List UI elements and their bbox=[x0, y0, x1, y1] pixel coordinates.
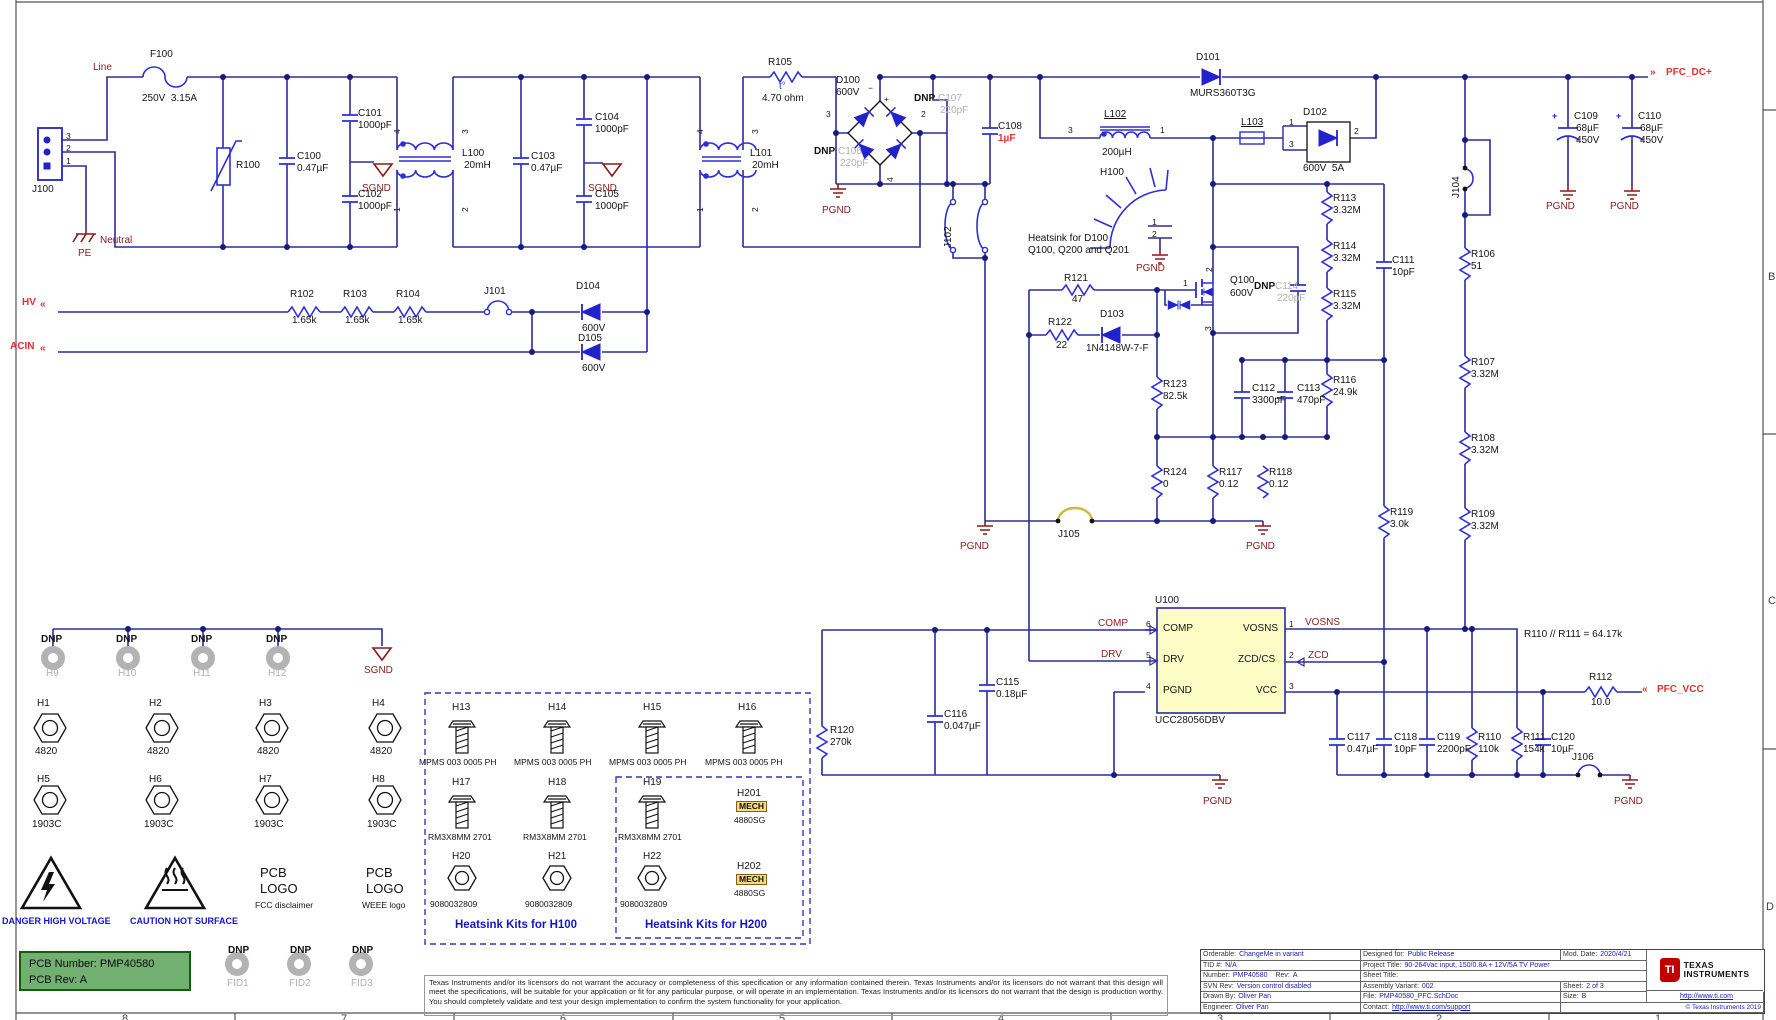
schematic-label: 68µF bbox=[1576, 124, 1599, 134]
schematic-label: 3 bbox=[1068, 126, 1073, 135]
schematic-label: D100 bbox=[836, 76, 860, 86]
schematic-label: PCB bbox=[260, 866, 287, 879]
schematic-label: H21 bbox=[548, 852, 566, 862]
schematic-label: DRV bbox=[1101, 650, 1122, 660]
schematic-label: J105 bbox=[1058, 530, 1080, 540]
schematic-label: « bbox=[40, 344, 46, 354]
schematic-label: C110 bbox=[1638, 112, 1661, 122]
schematic-label: 82.5k bbox=[1163, 392, 1187, 402]
schematic-label: H8 bbox=[372, 775, 385, 785]
schematic-label: DNP bbox=[914, 94, 935, 104]
schematic-label: L103 bbox=[1241, 118, 1263, 128]
jumper-J106 bbox=[1576, 765, 1603, 777]
pcb-rev: PCB Rev: A bbox=[29, 972, 181, 988]
schematic-label: MPMS 003 0005 PH bbox=[514, 758, 591, 767]
schematic-label: U100 bbox=[1155, 596, 1179, 606]
schematic-label: H3 bbox=[259, 699, 272, 709]
schematic-label: J104 bbox=[1452, 176, 1462, 198]
schematic-label: 4 bbox=[696, 129, 705, 134]
schematic-label: 0 bbox=[1163, 480, 1169, 490]
ti-bug-icon: TI bbox=[1660, 958, 1680, 982]
schematic-label: H19 bbox=[643, 778, 661, 788]
schematic-label: 0.12 bbox=[1269, 480, 1288, 490]
schematic-label: R117 bbox=[1219, 468, 1242, 478]
schematic-label: 1 bbox=[1655, 1014, 1661, 1020]
jumper-J101 bbox=[484, 301, 511, 315]
schematic-label: R118 bbox=[1269, 468, 1292, 478]
schematic-label: + bbox=[884, 95, 889, 104]
schematic-label: » bbox=[1650, 68, 1656, 78]
schematic-label: LOGO bbox=[260, 882, 298, 895]
schematic-label: H201 bbox=[737, 789, 761, 799]
schematic-label: 3 bbox=[751, 129, 760, 134]
schematic-label: C102 bbox=[358, 190, 382, 200]
schematic-label: 154k bbox=[1523, 745, 1545, 755]
schematic-label: 10pF bbox=[1392, 268, 1415, 278]
schematic-label: DNP bbox=[352, 946, 373, 956]
schematic-label: 600V bbox=[836, 88, 859, 98]
schematic-label: R106 bbox=[1471, 250, 1495, 260]
schematic-label: FID2 bbox=[289, 979, 311, 989]
schematic-label: H7 bbox=[259, 775, 272, 785]
schematic-label: 0.12 bbox=[1219, 480, 1238, 490]
schematic-label: B bbox=[1768, 272, 1775, 283]
schematic-label: 8 bbox=[122, 1014, 128, 1020]
schematic-label: R109 bbox=[1471, 510, 1495, 520]
diode-D104 bbox=[582, 304, 600, 320]
schematic-label: − bbox=[868, 84, 873, 93]
schematic-label: 3.32M bbox=[1333, 206, 1361, 216]
schematic-label: 9080032809 bbox=[525, 900, 572, 909]
schematic-label: HV bbox=[22, 298, 36, 308]
schematic-label: H16 bbox=[738, 703, 756, 713]
schematic-label: 220pF bbox=[840, 159, 868, 169]
schematic-label: C112 bbox=[1252, 384, 1275, 394]
schematic-label: R119 bbox=[1390, 508, 1413, 518]
schematic-label: PGND bbox=[1163, 686, 1192, 696]
schematic-label: PGND bbox=[822, 206, 851, 216]
jumper-J105 bbox=[1056, 508, 1095, 523]
input-connector-J100 bbox=[38, 128, 62, 180]
schematic-label: FID1 bbox=[227, 979, 249, 989]
schematic-label: D104 bbox=[576, 282, 600, 292]
schematic-label: PGND bbox=[1203, 797, 1232, 807]
schematic-label: R108 bbox=[1471, 434, 1495, 444]
schematic-label: H13 bbox=[452, 703, 470, 713]
schematic-label: PGND bbox=[1246, 542, 1275, 552]
schematic-label: 9080032809 bbox=[620, 900, 667, 909]
jumper-J104 bbox=[1463, 166, 1473, 192]
schematic-label: 20mH bbox=[464, 161, 491, 171]
schematic-label: H9 bbox=[46, 669, 59, 679]
schematic-label: PGND bbox=[1610, 202, 1639, 212]
schematic-label: CAUTION HOT SURFACE bbox=[130, 917, 238, 926]
schematic-label: RM3X8MM 2701 bbox=[428, 833, 492, 842]
schematic-label: C111 bbox=[1392, 256, 1414, 266]
diode-D105 bbox=[582, 344, 600, 360]
schematic-label: COMP bbox=[1098, 619, 1128, 629]
schematic-label: C115 bbox=[996, 678, 1019, 688]
title-block-cell: Engineer:Oliver Pan bbox=[1201, 1003, 1361, 1014]
schematic-label: PGND bbox=[1614, 797, 1643, 807]
schematic-label: 200µH bbox=[1102, 148, 1132, 158]
schematic-label: 47 bbox=[1072, 295, 1083, 305]
ti-logo: TI TEXAS INSTRUMENTS bbox=[1646, 949, 1763, 991]
schematic-label: 2200pF bbox=[1437, 745, 1471, 755]
fuse-F100 bbox=[143, 67, 187, 87]
schematic-label: H15 bbox=[643, 703, 661, 713]
schematic-label: 4820 bbox=[370, 747, 392, 757]
title-block-cell: Project Title:90-264Vac input, 150/0.8A … bbox=[1361, 961, 1647, 972]
schematic-label: C109 bbox=[1574, 112, 1598, 122]
schematic-label: 4880SG bbox=[734, 889, 765, 898]
schematic-label: MPMS 003 0005 PH bbox=[609, 758, 686, 767]
schematic-label: H202 bbox=[737, 862, 761, 872]
schematic-label: R107 bbox=[1471, 358, 1495, 368]
schematic-label: R113 bbox=[1333, 194, 1356, 204]
danger-high-voltage-icon bbox=[22, 858, 80, 908]
schematic-label: 4 bbox=[1146, 682, 1151, 691]
schematic-label: 4 bbox=[886, 177, 895, 182]
schematic-label: 0.47µF bbox=[297, 164, 328, 174]
schematic-label: C107 bbox=[938, 94, 962, 104]
schematic-label: DNP bbox=[814, 147, 835, 157]
schematic-label: 3 bbox=[1289, 682, 1294, 691]
schematic-label: MPMS 003 0005 PH bbox=[419, 758, 496, 767]
schematic-label: J102 bbox=[944, 226, 954, 248]
schematic-label: H100 bbox=[1100, 168, 1124, 178]
schematic-label: R123 bbox=[1163, 380, 1187, 390]
schematic-label: PFC_DC+ bbox=[1666, 68, 1712, 78]
ti-wordmark: TEXAS INSTRUMENTS bbox=[1684, 961, 1750, 979]
schematic-label: R122 bbox=[1048, 318, 1072, 328]
schematic-label: PGND bbox=[960, 542, 989, 552]
schematic-label: D101 bbox=[1196, 53, 1220, 63]
schematic-label: 2 bbox=[751, 207, 760, 212]
schematic-label: 1000pF bbox=[595, 202, 629, 212]
schematic-label: R121 bbox=[1064, 274, 1088, 284]
schematic-label: L101 bbox=[750, 149, 772, 159]
schematic-label: C108 bbox=[998, 122, 1022, 132]
schematic-label: 6 bbox=[1146, 620, 1151, 629]
title-block-cell: SVN Rev:Version control disabled bbox=[1201, 982, 1361, 993]
schematic-label: 3.32M bbox=[1333, 302, 1361, 312]
schematic-label: Line bbox=[93, 63, 112, 73]
schematic-label: Heatsink Kits for H100 bbox=[455, 920, 577, 932]
schematic-label: 600V bbox=[1230, 289, 1253, 299]
schematic-label: J100 bbox=[32, 185, 54, 195]
schematic-label: 220pF bbox=[1277, 294, 1305, 304]
schematic-label: VCC bbox=[1256, 686, 1277, 696]
title-block-cell: Sheet Title: bbox=[1361, 971, 1647, 982]
schematic-label: WEEE logo bbox=[362, 901, 405, 910]
schematic-label: 10.0 bbox=[1591, 698, 1610, 708]
schematic-label: 3.32M bbox=[1333, 254, 1361, 264]
schematic-label: DANGER HIGH VOLTAGE bbox=[2, 917, 111, 926]
schematic-label: C105 bbox=[595, 190, 619, 200]
disclaimer-text: Texas Instruments and/or its licensors d… bbox=[424, 975, 1168, 1016]
schematic-label: C101 bbox=[358, 109, 382, 119]
schematic-label: RM3X8MM 2701 bbox=[523, 833, 587, 842]
schematic-label: H20 bbox=[452, 852, 470, 862]
mounting-holes bbox=[34, 650, 401, 815]
inductor-L102 bbox=[1100, 127, 1150, 138]
schematic-label: D102 bbox=[1303, 108, 1327, 118]
schematic-label: 4820 bbox=[147, 747, 169, 757]
schematic-label: ACIN bbox=[10, 342, 34, 352]
schematic-label: VOSNS bbox=[1243, 624, 1278, 634]
schematic-label: C114 bbox=[1275, 282, 1298, 292]
schematic-label: 220pF bbox=[940, 106, 968, 116]
schematic-page: LineNeutralF100250V 3.15AJ100321PER100C1… bbox=[0, 0, 1776, 1020]
schematic-label: R116 bbox=[1333, 376, 1356, 386]
schematic-label: DNP bbox=[41, 635, 62, 645]
schematic-label: 1 bbox=[1183, 279, 1188, 288]
schematic-label: 3.32M bbox=[1471, 446, 1499, 456]
schematic-label: DNP bbox=[228, 946, 249, 956]
schematic-label: 51 bbox=[1471, 262, 1482, 272]
schematic-label: 1.65k bbox=[292, 316, 316, 326]
schematic-label: L102 bbox=[1104, 110, 1126, 120]
schematic-label: R124 bbox=[1163, 468, 1187, 478]
schematic-label: 3.32M bbox=[1471, 370, 1499, 380]
schematic-label: 1.65k bbox=[345, 316, 369, 326]
schematic-label: C118 bbox=[1394, 733, 1417, 743]
schematic-label: 1000pF bbox=[595, 125, 629, 135]
schematic-label: C119 bbox=[1437, 733, 1460, 743]
schematic-label: C103 bbox=[531, 152, 555, 162]
schematic-label: 10pF bbox=[1394, 745, 1417, 755]
schematic-label: H11 bbox=[193, 669, 211, 679]
schematic-label: 2 bbox=[921, 110, 926, 119]
schematic-label: PFC_VCC bbox=[1657, 685, 1704, 695]
choke-L101 bbox=[700, 142, 756, 178]
schematic-label: H2 bbox=[149, 699, 162, 709]
schematic-label: 1000pF bbox=[358, 202, 392, 212]
schematic-label: VOSNS bbox=[1305, 618, 1340, 628]
schematic-label: 3 bbox=[461, 129, 470, 134]
schematic-label: 1 bbox=[393, 207, 402, 212]
schematic-label: C120 bbox=[1551, 733, 1575, 743]
schematic-label: 0.47µF bbox=[1347, 745, 1378, 755]
schematic-label: 22 bbox=[1056, 341, 1067, 351]
schematic-label: SGND bbox=[364, 666, 393, 676]
schematic-label: 1 bbox=[1289, 620, 1294, 629]
schematic-label: PGND bbox=[1136, 264, 1165, 274]
title-block-cell: Drawn By:Oliver Pan bbox=[1201, 992, 1361, 1003]
gate-zener-pair bbox=[1168, 301, 1190, 310]
schematic-label: MURS360T3G bbox=[1190, 89, 1256, 99]
schematic-label: 450V bbox=[1576, 136, 1599, 146]
schematic-label: 2 bbox=[1354, 127, 1359, 136]
schematic-label: Heatsink Kits for H200 bbox=[645, 920, 767, 932]
schematic-label: DNP bbox=[266, 635, 287, 645]
diode-D101 bbox=[1202, 69, 1220, 85]
choke-L100 bbox=[397, 142, 453, 178]
schematic-label: 3 bbox=[1289, 140, 1294, 149]
schematic-label: 20mH bbox=[752, 161, 779, 171]
schematic-label: R120 bbox=[830, 726, 854, 736]
title-block-cell: © Texas Instruments 2019 bbox=[1561, 1003, 1764, 1014]
schematic-label: 1903C bbox=[144, 820, 173, 830]
schematic-label: PE bbox=[78, 249, 91, 259]
schematic-label: 4820 bbox=[257, 747, 279, 757]
schematic-label: 600V 5A bbox=[1303, 164, 1344, 174]
schematic-label: 1 bbox=[1152, 218, 1157, 227]
schematic-label: PCB bbox=[366, 866, 393, 879]
schematic-label: MECH bbox=[736, 801, 767, 812]
schematic-label: H4 bbox=[372, 699, 385, 709]
schematic-label: Neutral bbox=[100, 236, 132, 246]
schematic-label: 0.047µF bbox=[944, 722, 981, 732]
schematic-label: ZCD/CS bbox=[1238, 655, 1275, 665]
schematic-label: DNP bbox=[1254, 282, 1275, 292]
schematic-label: C bbox=[1768, 596, 1776, 607]
schematic-label: 0.18µF bbox=[996, 690, 1027, 700]
title-block-cell: TID #:N/A bbox=[1201, 961, 1361, 972]
schematic-label: DNP bbox=[290, 946, 311, 956]
title-block-cell: Size:B bbox=[1561, 992, 1647, 1003]
schematic-label: H22 bbox=[643, 852, 661, 862]
schematic-label: R115 bbox=[1333, 290, 1356, 300]
schematic-label: 600V bbox=[582, 364, 605, 374]
caution-hot-surface-icon bbox=[146, 858, 204, 908]
schematic-label: H5 bbox=[37, 775, 50, 785]
schematic-label: Q100 bbox=[1230, 276, 1254, 286]
schematic-label: R102 bbox=[290, 290, 314, 300]
schematic-label: MPMS 003 0005 PH bbox=[705, 758, 782, 767]
schematic-label: 24.9k bbox=[1333, 388, 1357, 398]
schematic-label: DNP bbox=[191, 635, 212, 645]
schematic-label: 2 bbox=[1436, 1014, 1442, 1020]
schematic-label: ZCD bbox=[1308, 651, 1329, 661]
schematic-label: 3.0k bbox=[1390, 520, 1409, 530]
schematic-label: Heatsink for D100 bbox=[1028, 234, 1108, 244]
title-block-cell[interactable]: http://www.ti.com bbox=[1647, 992, 1764, 1003]
schematic-label: 2 bbox=[1205, 267, 1214, 272]
schematic-label: H14 bbox=[548, 703, 566, 713]
schematic-label: L100 bbox=[462, 149, 484, 159]
schematic-label: 1903C bbox=[367, 820, 396, 830]
schematic-label: R110 // R111 = 64.17k bbox=[1524, 630, 1622, 640]
schematic-label: 68µF bbox=[1640, 124, 1663, 134]
schematic-label: H1 bbox=[37, 699, 50, 709]
schematic-label: 3.32M bbox=[1471, 522, 1499, 532]
schematic-label: Q100, Q200 and Q201 bbox=[1028, 246, 1129, 256]
schematic-label: FCC disclaimer bbox=[255, 901, 313, 910]
schematic-label: 1 bbox=[1160, 126, 1165, 135]
schematic-label: + bbox=[1616, 112, 1621, 121]
schematic-label: 470pF bbox=[1297, 396, 1325, 406]
schematic-label: C106 bbox=[838, 147, 862, 157]
schematic-label: 1903C bbox=[254, 820, 283, 830]
schematic-label: 7 bbox=[341, 1014, 347, 1020]
schematic-label: R104 bbox=[396, 290, 420, 300]
schematic-label: 10µF bbox=[1551, 745, 1574, 755]
schematic-label: R105 bbox=[768, 58, 792, 68]
schematic-label: 2 bbox=[1152, 230, 1157, 239]
schematic-label: 250V 3.15A bbox=[142, 94, 197, 104]
schematic-label: D105 bbox=[578, 334, 602, 344]
schematic-label: DRV bbox=[1163, 655, 1184, 665]
schematic-label: C117 bbox=[1347, 733, 1370, 743]
schematic-label: RM3X8MM 2701 bbox=[618, 833, 682, 842]
schematic-label: 1903C bbox=[32, 820, 61, 830]
schematic-label: PGND bbox=[1546, 202, 1575, 212]
mosfet-Q100 bbox=[1196, 279, 1213, 305]
schematic-label: D103 bbox=[1100, 310, 1124, 320]
schematic-label: R114 bbox=[1333, 242, 1356, 252]
schematic-label: 2 bbox=[66, 144, 71, 153]
schematic-label: LOGO bbox=[366, 882, 404, 895]
ferrite-L103 bbox=[1240, 132, 1264, 144]
schematic-label: 1 bbox=[696, 207, 705, 212]
schematic-label: t° bbox=[779, 82, 786, 92]
schematic-label: C116 bbox=[944, 710, 967, 720]
schematic-label: 9080032809 bbox=[430, 900, 477, 909]
schematic-label: C104 bbox=[595, 113, 619, 123]
schematic-label: 2 bbox=[461, 207, 470, 212]
title-block-cell: Assembly Variant:002 bbox=[1361, 982, 1561, 993]
schematic-label: MECH bbox=[736, 874, 767, 885]
title-block-cell: File:PMP40580_PFC.SchDoc bbox=[1361, 992, 1561, 1003]
pcb-number-box: PCB Number: PMP40580 PCB Rev: A bbox=[19, 951, 191, 991]
schematic-label: 1.65k bbox=[398, 316, 422, 326]
schematic-label: COMP bbox=[1163, 624, 1193, 634]
schematic-label: 0.47µF bbox=[531, 164, 562, 174]
schematic-label: 1000pF bbox=[358, 121, 392, 131]
schematic-label: FID3 bbox=[351, 979, 373, 989]
schematic-label: R103 bbox=[343, 290, 367, 300]
schematic-label: R111 bbox=[1523, 733, 1545, 743]
schematic-label: « bbox=[1642, 685, 1648, 695]
schematic-label: + bbox=[1552, 112, 1557, 121]
schematic-label: R110 bbox=[1478, 733, 1501, 743]
schematic-label: 3 bbox=[1204, 326, 1213, 331]
schematic-label: 3 bbox=[1217, 1014, 1223, 1020]
schematic-label: H10 bbox=[118, 669, 136, 679]
schematic-label: 4.70 ohm bbox=[762, 94, 804, 104]
schematic-label: 270k bbox=[830, 738, 852, 748]
schematic-label: 2 bbox=[1289, 651, 1294, 660]
title-block-cell: Number:PMP40580Rev:A bbox=[1201, 971, 1361, 982]
title-block-cell: Orderable:ChangeMe in variant bbox=[1201, 950, 1361, 961]
schematic-label: 4 bbox=[393, 129, 402, 134]
title-block-cell: Designed for:Public Release bbox=[1361, 950, 1561, 961]
schematic-label: 4820 bbox=[35, 747, 57, 757]
schematic-label: « bbox=[40, 300, 46, 310]
schematic-label: 5 bbox=[1146, 651, 1151, 660]
schematic-label: R100 bbox=[236, 161, 260, 171]
schematic-label: C113 bbox=[1297, 384, 1320, 394]
schematic-label: 3300pF bbox=[1252, 396, 1286, 406]
schematic-label: J101 bbox=[484, 287, 506, 297]
schematic-label: 1µF bbox=[998, 134, 1015, 144]
schematic-label: D bbox=[1766, 902, 1774, 913]
schematic-label: 450V bbox=[1640, 136, 1663, 146]
schematic-label: 3 bbox=[826, 110, 831, 119]
schematic-label: 1N4148W-7-F bbox=[1086, 344, 1149, 354]
schematic-label: R112 bbox=[1589, 673, 1612, 683]
schematic-label: 1 bbox=[66, 157, 71, 166]
title-block-cell[interactable]: Contact:http://www.ti.com/support bbox=[1361, 1003, 1561, 1014]
schematic-label: F100 bbox=[150, 50, 173, 60]
schematic-label: 4880SG bbox=[734, 816, 765, 825]
schematic-label: H12 bbox=[268, 669, 286, 679]
title-block-cell: Sheet:2 of 3 bbox=[1561, 982, 1647, 993]
schematic-label: H18 bbox=[548, 778, 566, 788]
schematic-label: H6 bbox=[149, 775, 162, 785]
